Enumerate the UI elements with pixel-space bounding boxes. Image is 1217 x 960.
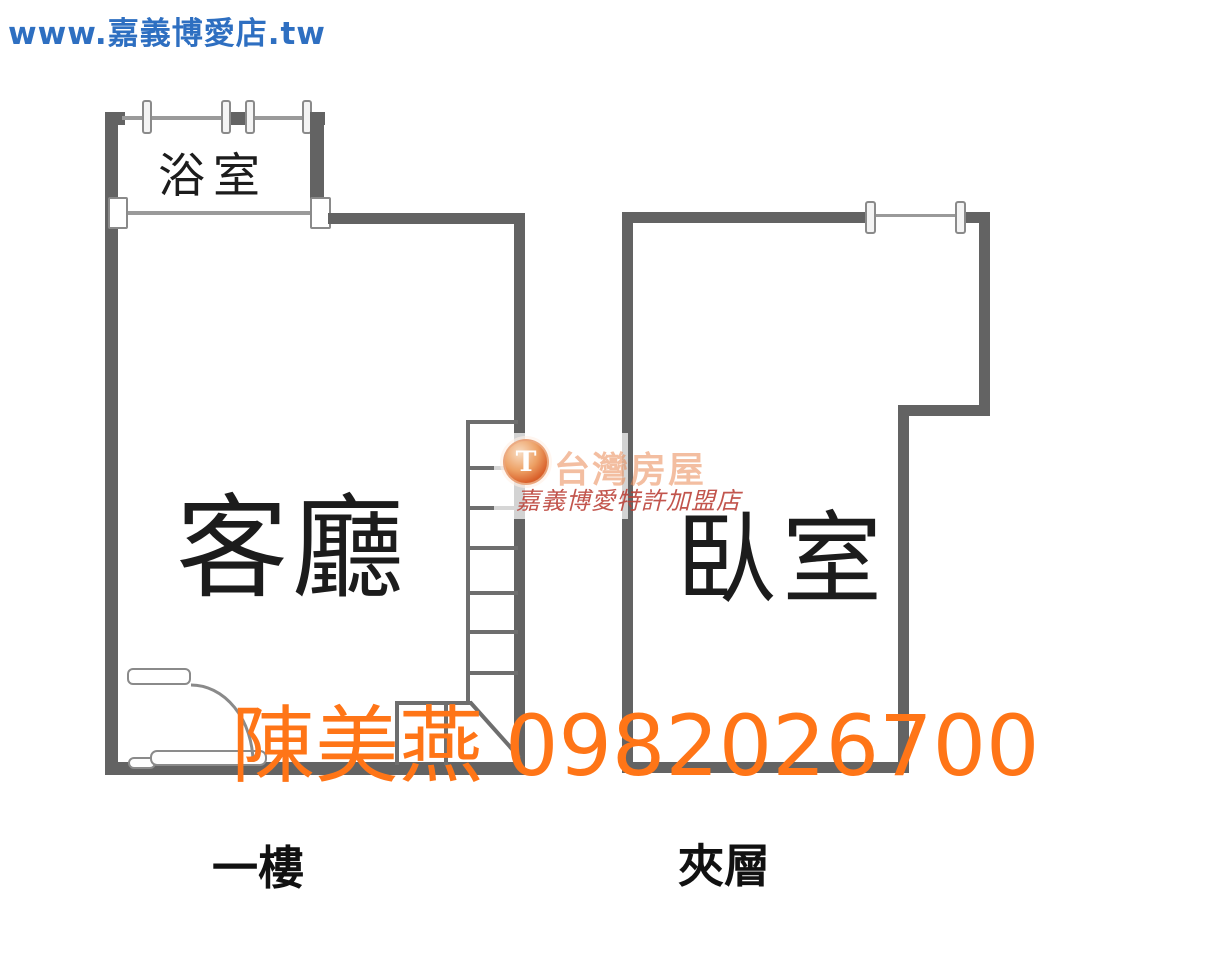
window-jamb	[955, 201, 966, 234]
floor-label-mezzanine: 夾層	[678, 830, 770, 896]
website-watermark: www.嘉義博愛店.tw	[8, 8, 326, 53]
wall-segment	[898, 405, 990, 416]
door-leaf	[127, 668, 191, 685]
window-line	[874, 214, 960, 217]
wall-segment	[328, 213, 525, 224]
agent-watermark: 陳美燕 0982026700	[231, 700, 1039, 792]
taiwan-housing-watermark: T 台灣房屋 嘉義博愛特許加盟店	[494, 433, 720, 519]
agent-phone: 0982026700	[505, 700, 1039, 792]
logo-letter: T	[505, 445, 547, 478]
stair-step	[470, 546, 518, 550]
room-label-bathroom: 浴室	[158, 137, 268, 206]
logo-branch-text: 嘉義博愛特許加盟店	[516, 481, 741, 516]
room-label-living: 客廳	[176, 458, 408, 620]
stair-step	[466, 420, 518, 424]
floor-plan-page: www.嘉義博愛店.tw	[0, 0, 1217, 960]
window-jamb	[142, 100, 152, 134]
window-jamb	[221, 100, 231, 134]
stair-edge	[466, 420, 470, 705]
window-jamb	[245, 100, 255, 134]
taiwan-housing-logo-icon: T	[503, 439, 549, 485]
agent-name: 陳美燕	[231, 700, 483, 792]
window-jamb	[865, 201, 876, 234]
floor-label-first: 一樓	[212, 832, 304, 898]
wall-segment	[979, 212, 990, 416]
door-jamb	[108, 197, 128, 229]
stair-step	[470, 671, 518, 675]
stair-step	[470, 630, 518, 634]
stair-step	[470, 591, 518, 595]
partition-line	[118, 211, 314, 215]
wall-segment	[622, 212, 870, 223]
